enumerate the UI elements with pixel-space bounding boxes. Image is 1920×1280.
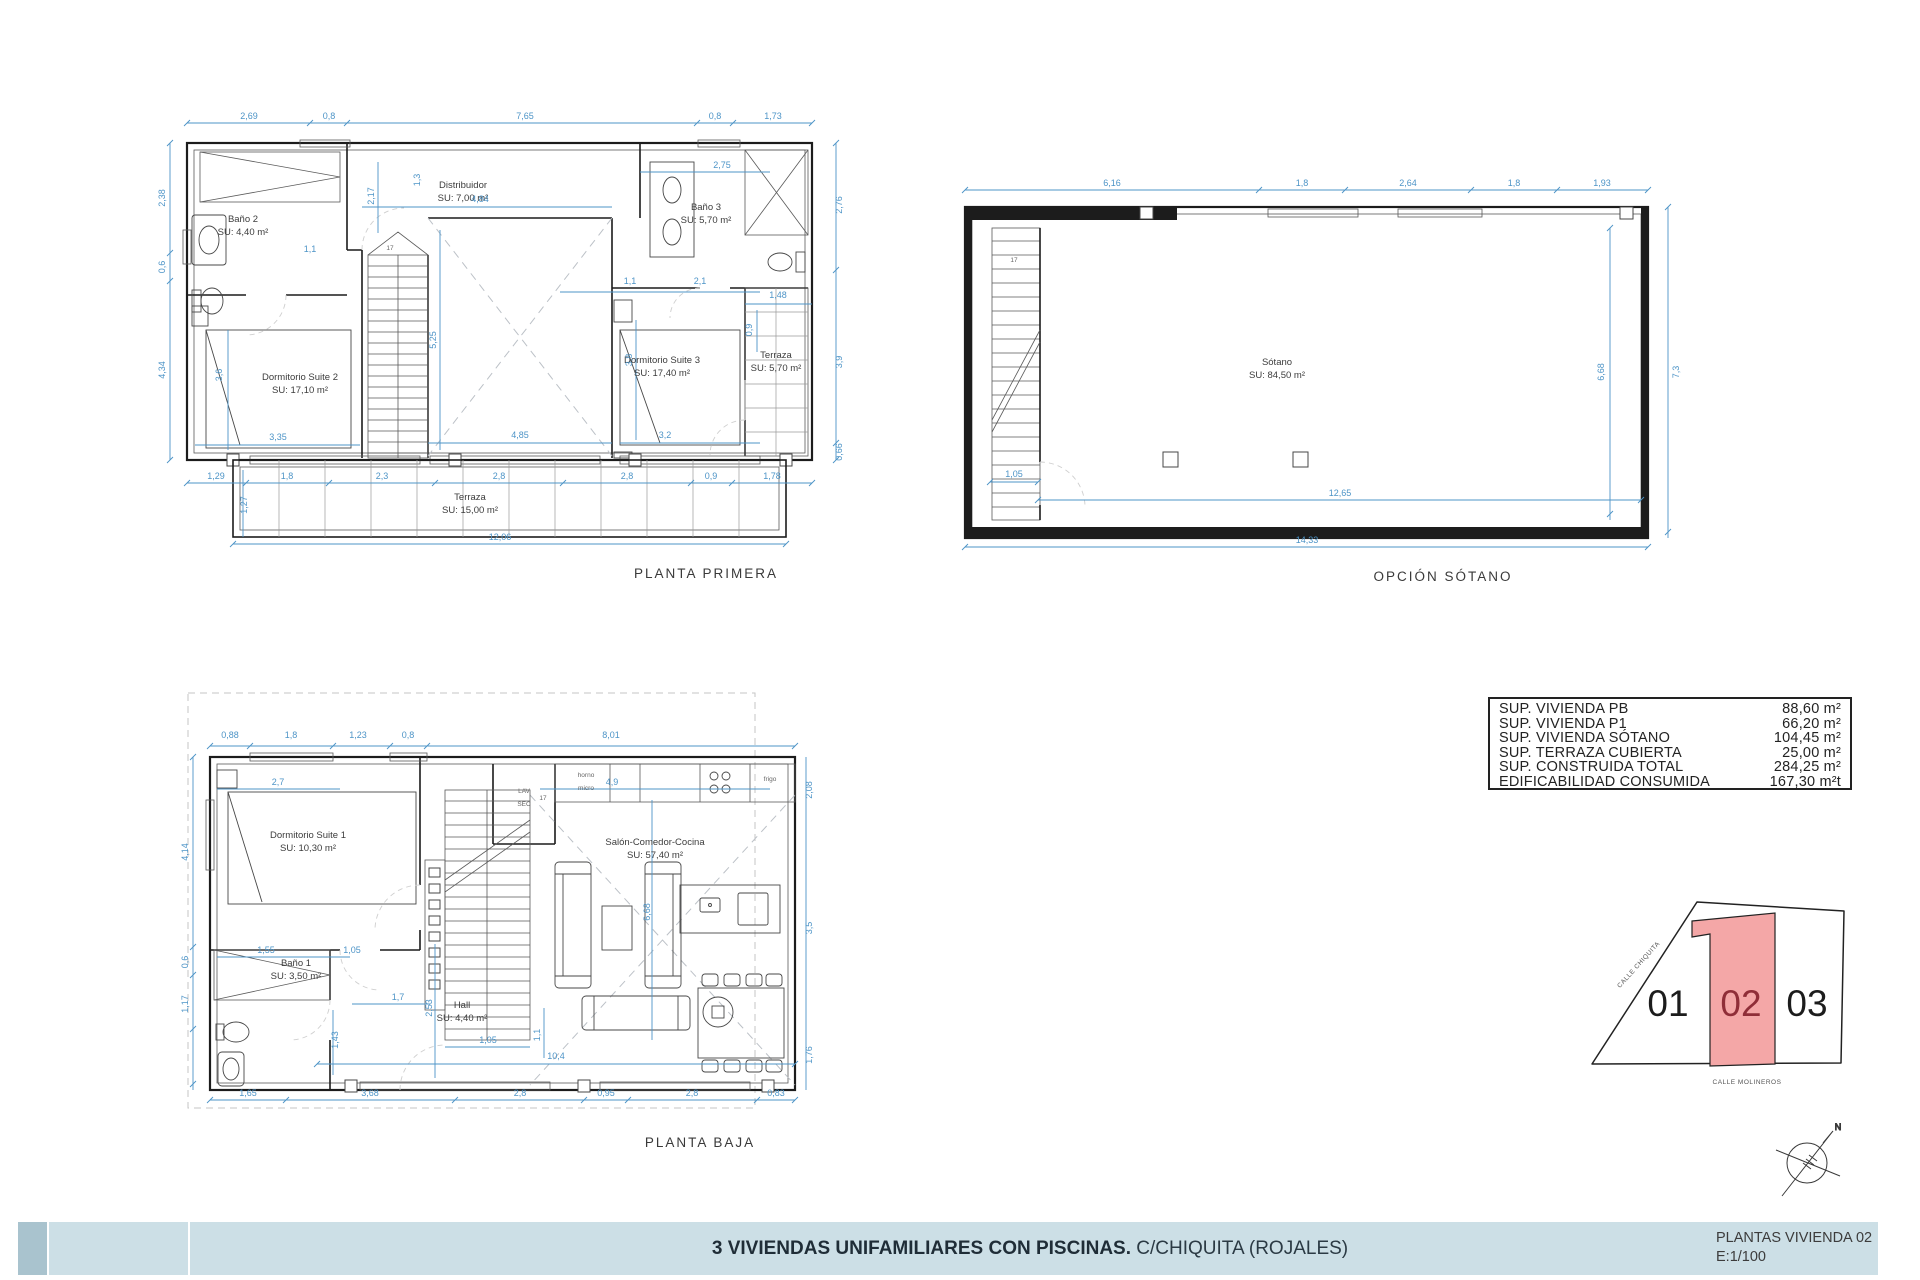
sheet-title: PLANTAS VIVIENDA 02	[1716, 1229, 1872, 1248]
terraza-p1-label: SU: 5,70 m²	[751, 363, 802, 374]
dimension-label: 1,73	[764, 111, 782, 121]
title-bar: 3 VIVIENDAS UNIFAMILIARES CON PISCINAS. …	[0, 1222, 1920, 1275]
table-row: SUP. VIVIENDA P166,20 m²	[1499, 717, 1841, 732]
sheet-scale: E:1/100	[1716, 1248, 1872, 1267]
plan-title-baja: PLANTA BAJA	[645, 1135, 755, 1150]
project-title-location: C/CHIQUITA (ROJALES)	[1131, 1238, 1348, 1260]
area-value: 66,20 m²	[1782, 717, 1841, 732]
salon-label: SU: 57,40 m²	[627, 850, 683, 861]
project-title-bold: 3 VIVIENDAS UNIFAMILIARES CON PISCINAS.	[712, 1238, 1131, 1260]
area-label: EDIFICABILIDAD CONSUMIDA	[1499, 775, 1710, 790]
dimension-label: 0,6	[157, 261, 167, 274]
dimension-label: 1,8	[1508, 178, 1521, 188]
suite2-label: SU: 17,10 m²	[272, 385, 328, 396]
sotano-label: Sótano	[1262, 357, 1292, 368]
dimension-label: 1,65	[239, 1088, 257, 1098]
banio3-label: SU: 5,70 m²	[681, 215, 732, 226]
dimension-label: 7,3	[1671, 366, 1681, 379]
table-row: SUP. VIVIENDA SÓTANO104,45 m²	[1499, 731, 1841, 746]
suite2-label: Dormitorio Suite 2	[262, 372, 338, 383]
suite1-label: Dormitorio Suite 1	[270, 830, 346, 841]
dimension-label: 3,68	[361, 1088, 379, 1098]
banio1-label: SU: 3,50 m²	[271, 971, 322, 982]
dimension-label: 1,8	[1296, 178, 1309, 188]
dimension-label: 1,1	[624, 276, 637, 286]
area-value: 104,45 m²	[1774, 731, 1841, 746]
dimension-label: 0,9	[705, 471, 718, 481]
dimension-label: 3,2	[659, 430, 672, 440]
dimension-label: 2,7	[272, 777, 285, 787]
dimension-label: 2,75	[713, 160, 731, 170]
dimension-label: 1,05	[343, 945, 361, 955]
dimension-label: 0,8	[402, 730, 415, 740]
area-label: SUP. CONSTRUIDA TOTAL	[1499, 760, 1683, 775]
area-value: 25,00 m²	[1782, 746, 1841, 761]
dimension-label: 1,7	[392, 992, 405, 1002]
floor-plan-planta-baja: PLANTA BAJA Dormitorio Suite 1SU: 10,30 …	[180, 693, 814, 1150]
dimension-label: 10,4	[547, 1051, 565, 1061]
north-compass-icon: N	[1776, 1122, 1841, 1196]
dimension-label: 1,05	[1005, 469, 1023, 479]
dimension-label: 1,1	[304, 244, 317, 254]
dimension-label: 4,9	[606, 777, 619, 787]
street-label-molineros: CALLE MOLINEROS	[1713, 1079, 1782, 1086]
dimension-label: 0,6	[180, 956, 190, 969]
title-bar-main-segment: 3 VIVIENDAS UNIFAMILIARES CON PISCINAS. …	[190, 1222, 1878, 1275]
area-value: 284,25 m²	[1774, 760, 1841, 775]
sotano-label: SU: 84,50 m²	[1249, 370, 1305, 381]
lav-sec-label: SEC	[517, 801, 531, 808]
dimension-label: 1,29	[207, 471, 225, 481]
dimension-label: 0,8	[323, 111, 336, 121]
areas-summary-table: SUP. VIVIENDA PB88,60 m² SUP. VIVIENDA P…	[1488, 697, 1852, 790]
banio1-label: Baño 1	[281, 958, 311, 969]
dimension-label: 2,69	[240, 111, 258, 121]
stair-steps-label: 17	[386, 245, 394, 252]
banio2-label: SU: 4,40 m²	[218, 227, 269, 238]
banio3-label: Baño 3	[691, 202, 721, 213]
dimension-label: 2,53	[424, 999, 434, 1017]
area-label: SUP. VIVIENDA P1	[1499, 717, 1627, 732]
title-bar-square	[18, 1222, 47, 1275]
dimension-label: 2,8	[514, 1088, 527, 1098]
north-label: N	[1835, 1122, 1842, 1132]
dimension-label: 3,5	[804, 922, 814, 935]
sheet-info: PLANTAS VIVIENDA 02 E:1/100	[1716, 1229, 1872, 1267]
dimension-label: 4,85	[511, 430, 529, 440]
dimension-label: 2,8	[686, 1088, 699, 1098]
dimension-label: 4,14	[180, 843, 190, 861]
area-label: SUP. TERRAZA CUBIERTA	[1499, 746, 1682, 761]
title-bar-segment	[49, 1222, 188, 1275]
dimension-label: 2,38	[157, 189, 167, 207]
dimension-label: 1,27	[239, 496, 249, 514]
site-plan: 010203 CALLE CHIQUITA CALLE MOLINEROS	[1592, 902, 1844, 1086]
dimension-label: 6,16	[1103, 178, 1121, 188]
dimension-label: 1,48	[769, 290, 787, 300]
dimension-label: 4,34	[157, 361, 167, 379]
floor-plan-planta-primera: PLANTA PRIMERA Baño 2SU: 4,40 m²Distribu…	[157, 111, 844, 581]
hall-label: Hall	[454, 1000, 470, 1011]
dimension-label: 2,17	[366, 187, 376, 205]
table-row: SUP. CONSTRUIDA TOTAL284,25 m²	[1499, 760, 1841, 775]
area-value: 88,60 m²	[1782, 702, 1841, 717]
dimension-label: 6,68	[1596, 363, 1606, 381]
dimension-label: 3,8	[624, 354, 634, 367]
dimension-label: 2,08	[804, 781, 814, 799]
dimension-label: 1,8	[281, 471, 294, 481]
dimension-label: 0,9	[744, 324, 754, 337]
dimension-label: 0,95	[597, 1088, 615, 1098]
dimension-label: 1,43	[330, 1031, 340, 1049]
plot-number-03: 03	[1786, 983, 1827, 1024]
dimension-label: 2,3	[376, 471, 389, 481]
dimension-label: 0,88	[221, 730, 239, 740]
dimension-label: 3,35	[269, 432, 287, 442]
dimension-label: 3,6	[214, 369, 224, 382]
stair-steps-label: 17	[1010, 257, 1018, 264]
banio2-label: Baño 2	[228, 214, 258, 225]
terraza-cubierta-label: SU: 15,00 m²	[442, 505, 498, 516]
horno-micro-label: horno	[578, 772, 595, 779]
plans-canvas: PLANTA PRIMERA Baño 2SU: 4,40 m²Distribu…	[0, 0, 1920, 1280]
dimension-label: 3,9	[834, 356, 844, 369]
horno-micro-label: micro	[578, 785, 594, 792]
dimension-label: 0,66	[834, 443, 844, 461]
dimension-label: 12,06	[489, 532, 512, 542]
dimension-label: 1,05	[479, 1035, 497, 1045]
dimension-label: 1,55	[257, 945, 275, 955]
area-label: SUP. VIVIENDA PB	[1499, 702, 1628, 717]
plan-title-sotano: OPCIÓN SÓTANO	[1373, 569, 1512, 584]
dimension-label: 1,76	[804, 1046, 814, 1064]
suite3-label: Dormitorio Suite 3	[624, 355, 700, 366]
dimension-label: 4,84	[471, 194, 489, 204]
dimension-label: 2,1	[694, 276, 707, 286]
table-row: EDIFICABILIDAD CONSUMIDA167,30 m²t	[1499, 775, 1841, 790]
frigo-label: frigo	[764, 776, 777, 783]
dimension-label: 0,8	[709, 111, 722, 121]
dimension-label: 1,17	[180, 995, 190, 1013]
stair-steps-label: 17	[539, 795, 547, 802]
project-title: 3 VIVIENDAS UNIFAMILIARES CON PISCINAS. …	[520, 1222, 1540, 1275]
dimension-label: 6,68	[642, 903, 652, 921]
plot-number-01: 01	[1647, 983, 1688, 1024]
table-row: SUP. VIVIENDA PB88,60 m²	[1499, 702, 1841, 717]
dimension-label: 2,64	[1399, 178, 1417, 188]
dimension-label: 2,8	[621, 471, 634, 481]
drawing-sheet: PLANTA PRIMERA Baño 2SU: 4,40 m²Distribu…	[0, 0, 1920, 1280]
dimension-label: 5,25	[428, 331, 438, 349]
suite3-label: SU: 17,40 m²	[634, 368, 690, 379]
dimension-label: 2,76	[834, 196, 844, 214]
dimension-label: 1,1	[532, 1029, 542, 1042]
dimension-label: 2,8	[493, 471, 506, 481]
table-row: SUP. TERRAZA CUBIERTA25,00 m²	[1499, 746, 1841, 761]
dimension-label: 7,65	[516, 111, 534, 121]
area-label: SUP. VIVIENDA SÓTANO	[1499, 731, 1670, 746]
dimension-label: 1,78	[763, 471, 781, 481]
dimension-label: 8,01	[602, 730, 620, 740]
area-value: 167,30 m²t	[1770, 775, 1841, 790]
hall-label: SU: 4,40 m²	[437, 1013, 488, 1024]
dimension-label: 1,8	[285, 730, 298, 740]
dimension-label: 14,33	[1296, 535, 1319, 545]
floor-plan-opcion-sotano: OPCIÓN SÓTANO SótanoSU: 84,50 m²176,161,…	[962, 178, 1681, 584]
dimension-label: 1,93	[1593, 178, 1611, 188]
dimension-label: 1,23	[349, 730, 367, 740]
plan-title-primera: PLANTA PRIMERA	[634, 566, 778, 581]
suite1-label: SU: 10,30 m²	[280, 843, 336, 854]
lav-sec-label: LAV	[518, 788, 530, 795]
dimension-label: 12,65	[1329, 488, 1352, 498]
terraza-cubierta-label: Terraza	[454, 492, 486, 503]
plot-number-02: 02	[1720, 983, 1761, 1024]
dimension-label: 0,83	[767, 1088, 785, 1098]
distribuidor-label: Distribuidor	[439, 180, 487, 191]
salon-label: Salón-Comedor-Cocina	[605, 837, 705, 848]
terraza-p1-label: Terraza	[760, 350, 792, 361]
dimension-label: 1,3	[412, 174, 422, 187]
